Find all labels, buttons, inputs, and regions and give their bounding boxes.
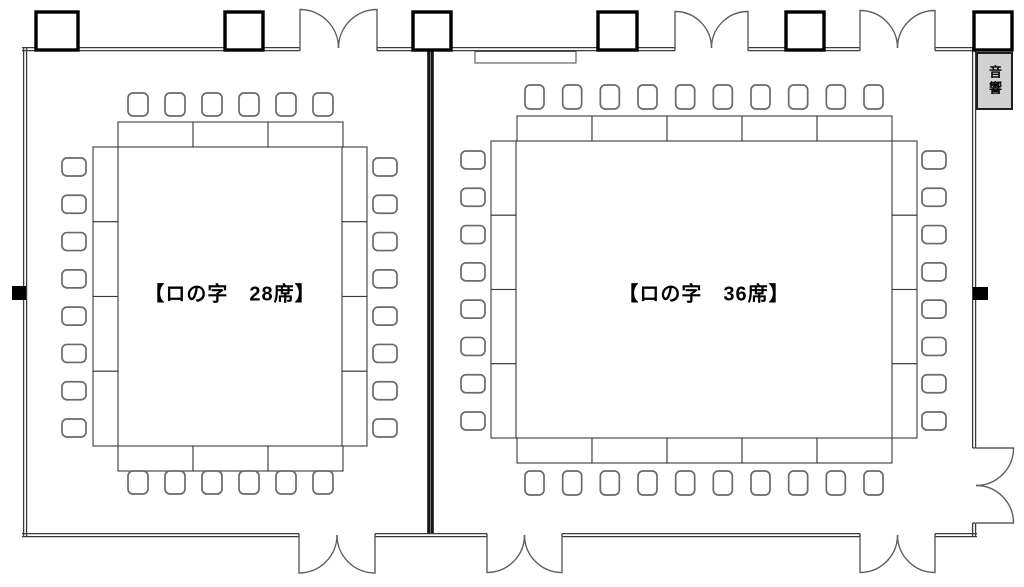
- door-leaf: [860, 11, 898, 49]
- chair: [461, 263, 485, 281]
- table: [742, 438, 817, 463]
- chair: [525, 85, 544, 109]
- chair: [373, 307, 397, 325]
- chair: [789, 471, 808, 495]
- chair: [864, 471, 883, 495]
- chair: [676, 471, 695, 495]
- table: [193, 122, 268, 147]
- chair: [461, 151, 485, 169]
- chair: [128, 471, 148, 494]
- chair: [373, 382, 397, 400]
- door-leaf: [712, 12, 749, 49]
- chair: [239, 471, 259, 494]
- chair: [563, 471, 582, 495]
- door-leaf: [898, 11, 936, 49]
- chair: [461, 375, 485, 393]
- chair: [373, 270, 397, 288]
- chair: [373, 419, 397, 437]
- table: [817, 438, 892, 463]
- chair: [864, 85, 883, 109]
- table: [118, 122, 193, 147]
- chair: [751, 471, 770, 495]
- table: [93, 371, 118, 446]
- column: [36, 12, 78, 50]
- chair: [62, 233, 86, 251]
- chair: [922, 226, 946, 244]
- table: [342, 147, 367, 222]
- wall-outlet: [973, 287, 988, 300]
- chair: [922, 300, 946, 318]
- door-leaf: [976, 486, 1014, 524]
- left-room-label: 【ロの字 28席】: [144, 278, 315, 307]
- door-leaf: [860, 535, 898, 573]
- chair: [600, 85, 619, 109]
- chair: [826, 85, 845, 109]
- table: [892, 141, 917, 215]
- table: [268, 122, 343, 147]
- door-leaf: [675, 12, 712, 49]
- chair: [922, 151, 946, 169]
- wall-counter: [475, 52, 576, 64]
- chair: [62, 382, 86, 400]
- table: [342, 222, 367, 297]
- floor-plan: 【ロの字 28席】 【ロの字 36席】 音響: [0, 0, 1024, 587]
- chair: [373, 195, 397, 213]
- door-leaf: [976, 448, 1014, 486]
- table: [592, 438, 667, 463]
- audio-equipment-panel: 音響: [976, 52, 1013, 110]
- chair: [313, 93, 333, 116]
- door-leaf: [525, 535, 563, 573]
- chair: [713, 471, 732, 495]
- table: [93, 222, 118, 297]
- table: [742, 116, 817, 141]
- column: [225, 12, 263, 50]
- table: [93, 147, 118, 222]
- wall-outlet: [12, 286, 26, 300]
- chair: [461, 412, 485, 430]
- chair: [165, 93, 185, 116]
- door-leaf: [299, 535, 337, 573]
- door-leaf: [339, 10, 378, 49]
- door-leaf: [300, 10, 339, 49]
- audio-panel-label: 音響: [988, 65, 1001, 97]
- partition-wall: [427, 51, 434, 533]
- chair: [563, 85, 582, 109]
- table: [491, 141, 516, 215]
- chair: [461, 337, 485, 355]
- chair: [751, 85, 770, 109]
- door-leaf: [898, 535, 936, 573]
- chair: [713, 85, 732, 109]
- chair: [62, 270, 86, 288]
- table: [517, 438, 592, 463]
- table: [342, 371, 367, 446]
- table: [491, 364, 516, 438]
- chair: [276, 471, 296, 494]
- table: [93, 297, 118, 372]
- table: [491, 290, 516, 364]
- table: [892, 215, 917, 289]
- chair: [922, 412, 946, 430]
- table: [892, 290, 917, 364]
- chair: [826, 471, 845, 495]
- structural-columns: [36, 12, 1012, 50]
- chair: [461, 188, 485, 206]
- chair: [638, 85, 657, 109]
- chair: [202, 93, 222, 116]
- chair: [276, 93, 296, 116]
- table: [342, 297, 367, 372]
- chair: [62, 419, 86, 437]
- door-leaf: [337, 535, 375, 573]
- wall-counter-rect: [475, 52, 576, 64]
- table: [667, 116, 742, 141]
- table: [667, 438, 742, 463]
- chair: [373, 158, 397, 176]
- chair: [373, 344, 397, 362]
- chair: [373, 233, 397, 251]
- chair: [600, 471, 619, 495]
- chair: [525, 471, 544, 495]
- chair: [461, 300, 485, 318]
- chair: [922, 188, 946, 206]
- chair: [62, 344, 86, 362]
- chair: [62, 307, 86, 325]
- chair: [313, 471, 333, 494]
- chair: [239, 93, 259, 116]
- table: [892, 364, 917, 438]
- chair: [165, 471, 185, 494]
- chair: [638, 471, 657, 495]
- column: [598, 12, 637, 50]
- chair: [922, 375, 946, 393]
- right-room-label: 【ロの字 36席】: [618, 278, 789, 307]
- table: [517, 116, 592, 141]
- table: [118, 446, 193, 471]
- chair: [922, 263, 946, 281]
- chair: [128, 93, 148, 116]
- table: [817, 116, 892, 141]
- chair: [461, 226, 485, 244]
- column: [413, 12, 451, 50]
- column: [974, 12, 1012, 50]
- column: [786, 12, 824, 50]
- door-leaf: [487, 535, 525, 573]
- chair: [676, 85, 695, 109]
- table: [592, 116, 667, 141]
- chair: [62, 195, 86, 213]
- chair: [922, 337, 946, 355]
- table: [268, 446, 343, 471]
- chair: [202, 471, 222, 494]
- table: [491, 215, 516, 289]
- chair: [789, 85, 808, 109]
- table: [193, 446, 268, 471]
- chair: [62, 158, 86, 176]
